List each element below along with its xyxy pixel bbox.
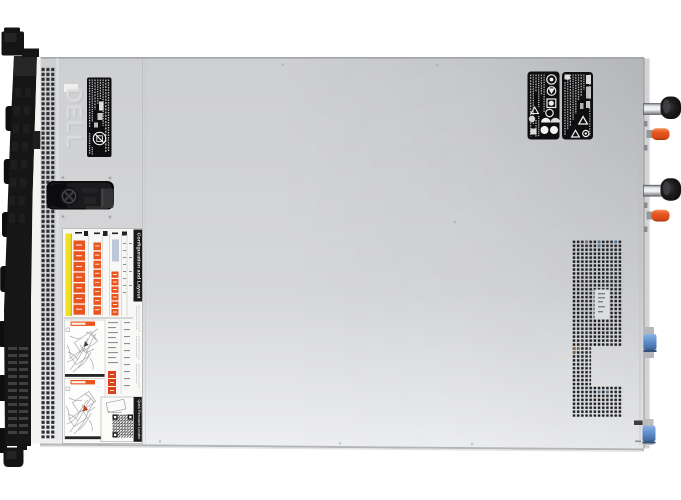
svg-text:Quick Resource Locator: Quick Resource Locator [137, 400, 141, 441]
svg-text:Configuration and Layout: Configuration and Layout [137, 233, 142, 300]
svg-text:DELL: DELL [61, 87, 86, 148]
